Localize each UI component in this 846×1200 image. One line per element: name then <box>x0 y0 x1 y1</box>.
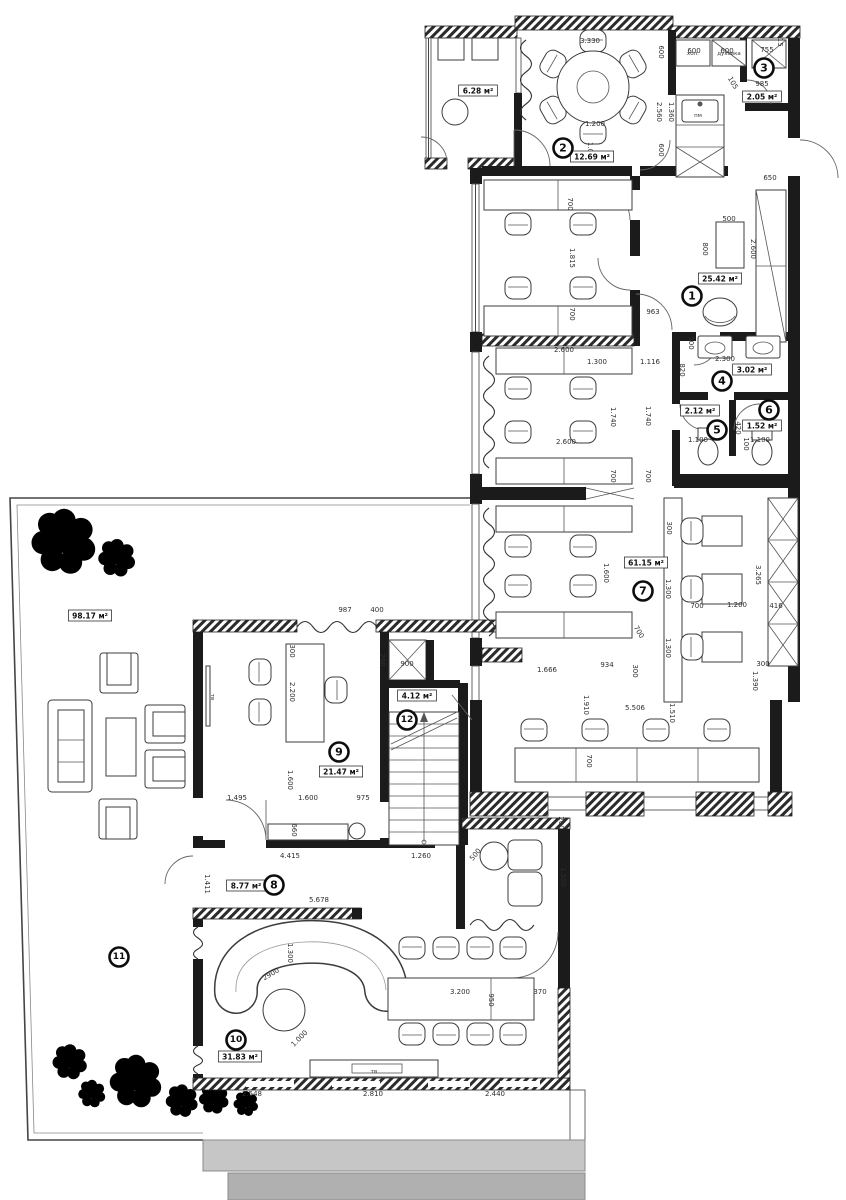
dimension-label: 600 <box>657 45 665 58</box>
room-number: 12 <box>401 715 414 725</box>
floor-plan-page: 3.3306006007554159851056002.5601.3606001… <box>0 0 846 1200</box>
room-area-label: 12.69 м² <box>570 151 613 162</box>
dimension-label: 1.666 <box>537 666 558 674</box>
svg-text:3.02 м²: 3.02 м² <box>737 366 768 375</box>
dimension-label: 5.678 <box>309 896 329 904</box>
dimension-label: 700 <box>644 469 652 482</box>
dimension-label: 105 <box>726 75 740 91</box>
dimension-label: 420 <box>734 421 742 434</box>
nook-furniture <box>480 840 542 906</box>
room-marker-6: 6 <box>760 401 779 420</box>
dimension-label: 200 <box>557 816 565 829</box>
dimension-label: 963 <box>646 308 659 316</box>
dimension-label: 1.300 <box>664 638 672 658</box>
dimension-label: 1.411 <box>203 874 211 894</box>
reception-furniture <box>703 190 786 342</box>
staircase <box>389 712 459 845</box>
dimension-label: 700 <box>632 624 646 640</box>
svg-text:31.83 м²: 31.83 м² <box>222 1053 258 1062</box>
svg-text:21.47 м²: 21.47 м² <box>323 768 359 777</box>
dimension-label: 1.510 <box>668 703 676 723</box>
room-area-label: 4.12 м² <box>398 690 437 701</box>
landscaping <box>32 509 259 1117</box>
svg-text:2.12 м²: 2.12 м² <box>685 407 716 416</box>
room-area-label: 25.42 м² <box>698 273 741 284</box>
dimension-label: 700 <box>566 197 574 210</box>
dimension-label: 1.300 <box>587 358 607 366</box>
room-marker-4: 4 <box>713 372 732 391</box>
dimension-label: 934 <box>600 661 614 669</box>
room-number: 7 <box>639 585 647 598</box>
fixture-label: тв <box>209 694 215 700</box>
room-marker-3: 3 <box>755 59 774 78</box>
dimension-label: 975 <box>356 794 369 802</box>
room-number: 5 <box>713 424 721 437</box>
dimension-label: 1.815 <box>568 248 576 268</box>
dimension-label: 650 <box>763 174 776 182</box>
dimension-label: 1.300 <box>286 943 294 963</box>
dimension-label: 5.506 <box>625 704 646 712</box>
dimension-label: 4.415 <box>280 852 300 860</box>
room-marker-1: 1 <box>683 287 702 306</box>
office-room-desks <box>484 180 632 336</box>
dimension-label: 950 <box>487 993 495 1006</box>
dimension-label: 1.200 <box>585 120 605 128</box>
dimension-label: 300 <box>756 660 769 668</box>
room-marker-12: 12 <box>398 711 417 730</box>
dimension-label: 900 <box>400 660 413 668</box>
room-marker-10: 10 <box>227 1031 246 1050</box>
fixture-label: пм <box>694 113 702 119</box>
room-marker-5: 5 <box>708 421 727 440</box>
dimension-label: 415 <box>776 33 784 46</box>
dimension-label: 987 <box>338 606 351 614</box>
room-number: 1 <box>688 290 696 303</box>
dimension-label: 800 <box>701 242 709 255</box>
dimension-label: 300 <box>631 664 639 677</box>
dimension-label: 1.260 <box>411 852 431 860</box>
room-marker-2: 2 <box>554 139 573 158</box>
dimension-label: 2.600 <box>749 239 757 259</box>
dimension-label: 3.330 <box>580 37 600 45</box>
svg-text:25.42 м²: 25.42 м² <box>702 275 738 284</box>
room-number: 9 <box>335 746 343 759</box>
room10-furniture <box>236 937 534 1077</box>
svg-text:12.69 м²: 12.69 м² <box>574 153 610 162</box>
dimension-label: 700 <box>585 754 593 767</box>
dimension-label: 1.116 <box>640 358 661 366</box>
dimension-label: 1.100 <box>688 436 708 444</box>
fixture-label: хол. <box>687 51 699 57</box>
dimension-label: 2.548 <box>242 1090 262 1098</box>
room-marker-9: 9 <box>330 743 349 762</box>
svg-text:61.15 м²: 61.15 м² <box>628 559 664 568</box>
dimension-label: 2.600 <box>554 346 574 354</box>
dimension-label: 2.200 <box>288 682 296 702</box>
dimension-label: 790 <box>378 653 386 666</box>
dimension-label: 1.360 <box>667 102 675 122</box>
room-marker-7: 7 <box>634 582 653 601</box>
dimension-label: 1.390 <box>751 671 759 691</box>
dimension-label: 1.300 <box>664 579 672 599</box>
dimension-label: 100 <box>742 437 750 450</box>
svg-text:1.52 м²: 1.52 м² <box>747 422 778 431</box>
svg-text:4.12 м²: 4.12 м² <box>402 692 433 701</box>
terrace-furniture <box>48 653 185 839</box>
dimension-label: 400 <box>370 606 383 614</box>
dimension-label: 2.560 <box>655 102 663 122</box>
room-number: 8 <box>270 879 278 892</box>
dimension-label: 2.600 <box>556 438 576 446</box>
svg-text:98.17 м²: 98.17 м² <box>72 612 108 621</box>
room-number: 4 <box>718 375 726 388</box>
svg-text:2.05 м²: 2.05 м² <box>747 93 778 102</box>
balcony-furniture <box>438 38 498 125</box>
room-area-label: 1.52 м² <box>743 420 782 431</box>
svg-text:6.28 м²: 6.28 м² <box>463 87 494 96</box>
room-area-label: 3.02 м² <box>733 364 772 375</box>
dimension-label: 1.600 <box>286 770 294 790</box>
room-area-label: 2.12 м² <box>681 405 720 416</box>
svg-text:8.77 м²: 8.77 м² <box>231 882 262 891</box>
dimension-label: 1.200 <box>727 601 747 609</box>
room-area-label: 21.47 м² <box>319 766 362 777</box>
dimension-label: 370 <box>533 988 546 996</box>
dimension-label: 2.810 <box>363 1090 383 1098</box>
room-number: 10 <box>230 1035 243 1045</box>
dimension-label: 1.000 <box>290 1029 310 1049</box>
fixture-label: тв <box>371 1069 377 1075</box>
dimension-label: 985 <box>755 80 768 88</box>
room-area-label: 31.83 м² <box>218 1051 261 1062</box>
room-area-label: 98.17 м² <box>68 610 111 621</box>
dimension-label: 820 <box>678 363 686 376</box>
floor-plan-drawing: 3.3306006007554159851056002.5601.3606001… <box>0 0 846 1200</box>
dimension-label: 1.495 <box>227 794 247 802</box>
dimension-label: 1.600 <box>298 794 318 802</box>
dimension-label: 700 <box>568 307 576 320</box>
dimension-label: 500 <box>687 336 695 349</box>
room-marker-8: 8 <box>265 876 284 895</box>
dimension-label: 416 <box>769 602 783 610</box>
room-marker-11: 11 <box>110 948 129 967</box>
tree-icon <box>32 509 259 1117</box>
dimension-label: 300 <box>665 521 673 534</box>
dimension-label: 1.500 <box>559 867 567 887</box>
dimension-label: 1.740 <box>644 406 652 426</box>
dimension-label: 300 <box>288 644 296 657</box>
dimension-label: 1.600 <box>602 563 610 583</box>
room-number: 2 <box>559 142 567 155</box>
dimension-label: 600 <box>657 143 665 156</box>
dimension-label: 660 <box>290 823 298 836</box>
dimension-label: 700 <box>690 602 703 610</box>
dimension-label: 3.265 <box>754 565 762 585</box>
room-area-label: 2.05 м² <box>743 91 782 102</box>
dimension-label: 2.300 <box>715 355 735 363</box>
dimension-label: 700 <box>609 469 617 482</box>
room-area-label: 6.28 м² <box>459 85 498 96</box>
fixture-label: духовка <box>717 51 741 57</box>
dimension-label: 3.200 <box>450 988 470 996</box>
room-number: 11 <box>113 952 126 962</box>
room-number: 3 <box>760 62 768 75</box>
room-area-label: 61.15 м² <box>624 557 667 568</box>
dimension-label: 2.440 <box>485 1090 505 1098</box>
room-number: 6 <box>765 404 773 417</box>
dimension-label: 1.910 <box>582 695 590 715</box>
dimension-label: 755 <box>760 46 773 54</box>
dimension-label: 1.740 <box>609 407 617 427</box>
entrance-steps <box>203 1090 585 1200</box>
dimension-label: 500 <box>722 215 735 223</box>
dimension-label: 1.100 <box>750 436 770 444</box>
room-area-label: 8.77 м² <box>227 880 266 891</box>
